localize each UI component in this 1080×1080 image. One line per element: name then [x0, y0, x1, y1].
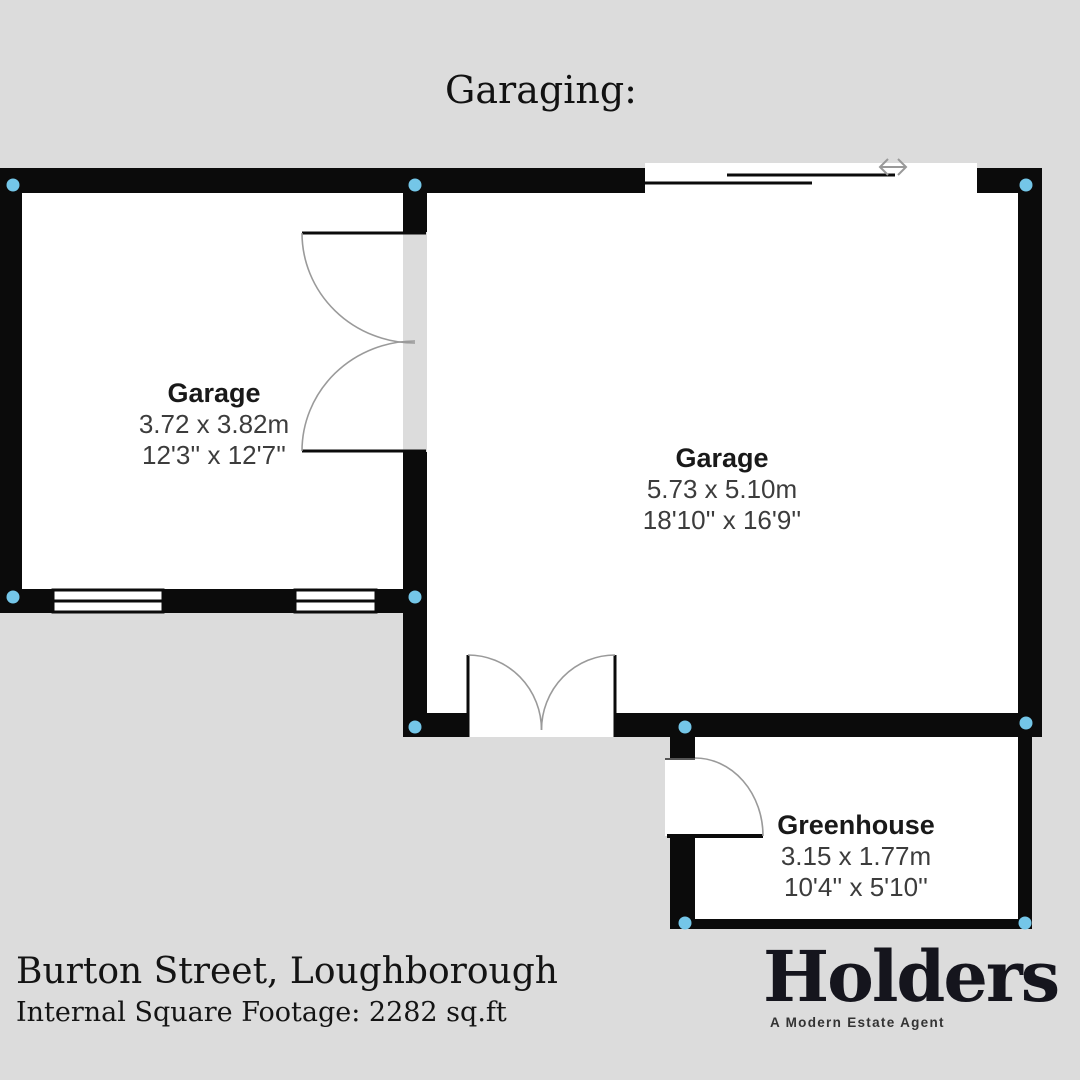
room-dimensions-imperial: 18'10'' x 16'9'': [643, 505, 801, 536]
greenhouse-door-opening: [665, 758, 695, 836]
wall-greenhouse-bottom: [670, 919, 1032, 929]
room-floors: [22, 163, 1018, 919]
corner-dot: [409, 721, 422, 734]
floor-plan: [0, 0, 1080, 1080]
floorplan-page: Garaging:: [0, 0, 1080, 1080]
corner-dot: [1019, 917, 1032, 930]
corner-dot: [409, 591, 422, 604]
corner-dot: [679, 917, 692, 930]
room-dimensions-metric: 3.72 x 3.82m: [139, 409, 289, 440]
corner-dot: [7, 591, 20, 604]
corner-dot: [679, 721, 692, 734]
corner-dot: [1020, 179, 1033, 192]
corner-dot: [7, 179, 20, 192]
wall-greenhouse-left-lower: [670, 836, 695, 929]
wall-greenhouse-left-upper: [670, 737, 695, 758]
room-name: Garage: [139, 377, 289, 409]
room-dimensions-imperial: 12'3'' x 12'7'': [139, 440, 289, 471]
room-label-greenhouse: Greenhouse 3.15 x 1.77m 10'4'' x 5'10'': [777, 809, 935, 903]
wall-top-left: [0, 168, 645, 193]
wall-middle-upper: [403, 193, 427, 232]
corner-dot: [1020, 717, 1033, 730]
room-dimensions-metric: 5.73 x 5.10m: [643, 474, 801, 505]
brand-logo: Holders A Modern Estate Agent: [763, 944, 1053, 1030]
room-dimensions-metric: 3.15 x 1.77m: [777, 841, 935, 872]
room-name: Garage: [643, 442, 801, 474]
property-address: Burton Street, Loughborough: [16, 951, 558, 992]
room-label-garage-right: Garage 5.73 x 5.10m 18'10'' x 16'9'': [643, 442, 801, 536]
internal-square-footage: Internal Square Footage: 2282 sq.ft: [16, 997, 507, 1028]
room-name: Greenhouse: [777, 809, 935, 841]
corner-dot: [409, 179, 422, 192]
room-dimensions-imperial: 10'4'' x 5'10'': [777, 872, 935, 903]
wall-greenhouse-right: [1018, 737, 1032, 929]
wall-left: [0, 168, 22, 613]
brand-name: Holders: [763, 944, 1053, 1010]
garage-door-opening: [645, 163, 977, 194]
room-label-garage-left: Garage 3.72 x 3.82m 12'3'' x 12'7'': [139, 377, 289, 471]
wall-right: [1018, 168, 1042, 737]
